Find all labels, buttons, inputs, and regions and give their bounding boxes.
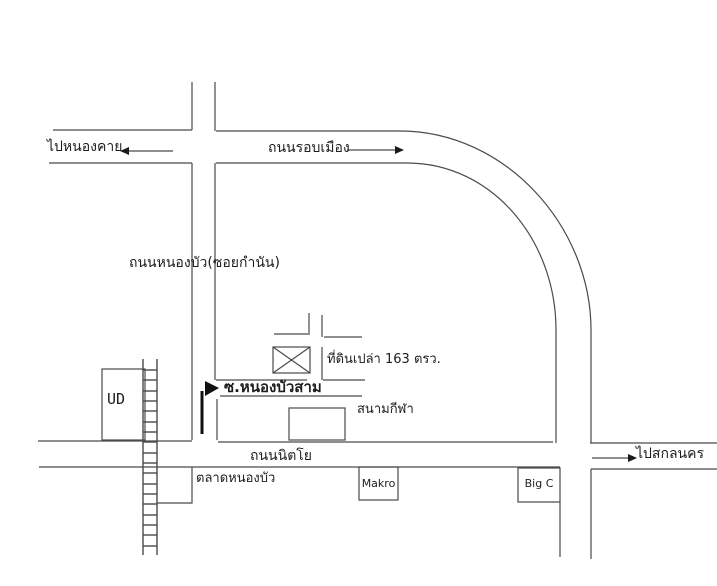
- vacant-land-marker-icon: [273, 347, 310, 373]
- ud-label: UD: [107, 391, 125, 408]
- sakon-arrow-icon: [592, 454, 637, 462]
- vacant-land-label: ที่ดินเปล่า 163 ตรว.: [327, 353, 441, 368]
- east-arrow-icon: [347, 146, 404, 154]
- makro-label: Makro: [359, 478, 398, 491]
- stadium-building-outline: [289, 408, 345, 440]
- south-east-road-lines: [560, 469, 591, 559]
- map-roads-drawing: [0, 0, 717, 586]
- west-arrow-icon: [120, 147, 173, 155]
- to-nong-khai-label: ไปหนองคาย: [47, 139, 122, 155]
- market-block-outline: [157, 467, 192, 503]
- bigc-label: Big C: [518, 478, 560, 491]
- to-sakon-nakhon-label: ไปสกลนคร: [636, 446, 704, 462]
- nong-bua-road-lines: [192, 163, 217, 440]
- north-road-lines: [192, 82, 215, 131]
- nittayo-road-label: ถนนนิตโย: [250, 448, 312, 464]
- stadium-label: สนามกีฬา: [357, 403, 414, 418]
- soi-nong-bua-sam-label: ซ.หนองบัวสาม: [224, 379, 322, 396]
- nong-bua-road-label: ถนนหนองบัว(ซอยกำนัน): [129, 255, 280, 271]
- ring-road-label: ถนนรอบเมือง: [268, 140, 350, 156]
- market-label: ตลาดหนองบัว: [196, 472, 275, 487]
- nittayo-road-lines: [38, 441, 717, 469]
- map-canvas: ไปหนองคาย ถนนรอบเมือง ถนนหนองบัว(ซอยกำนั…: [0, 0, 717, 586]
